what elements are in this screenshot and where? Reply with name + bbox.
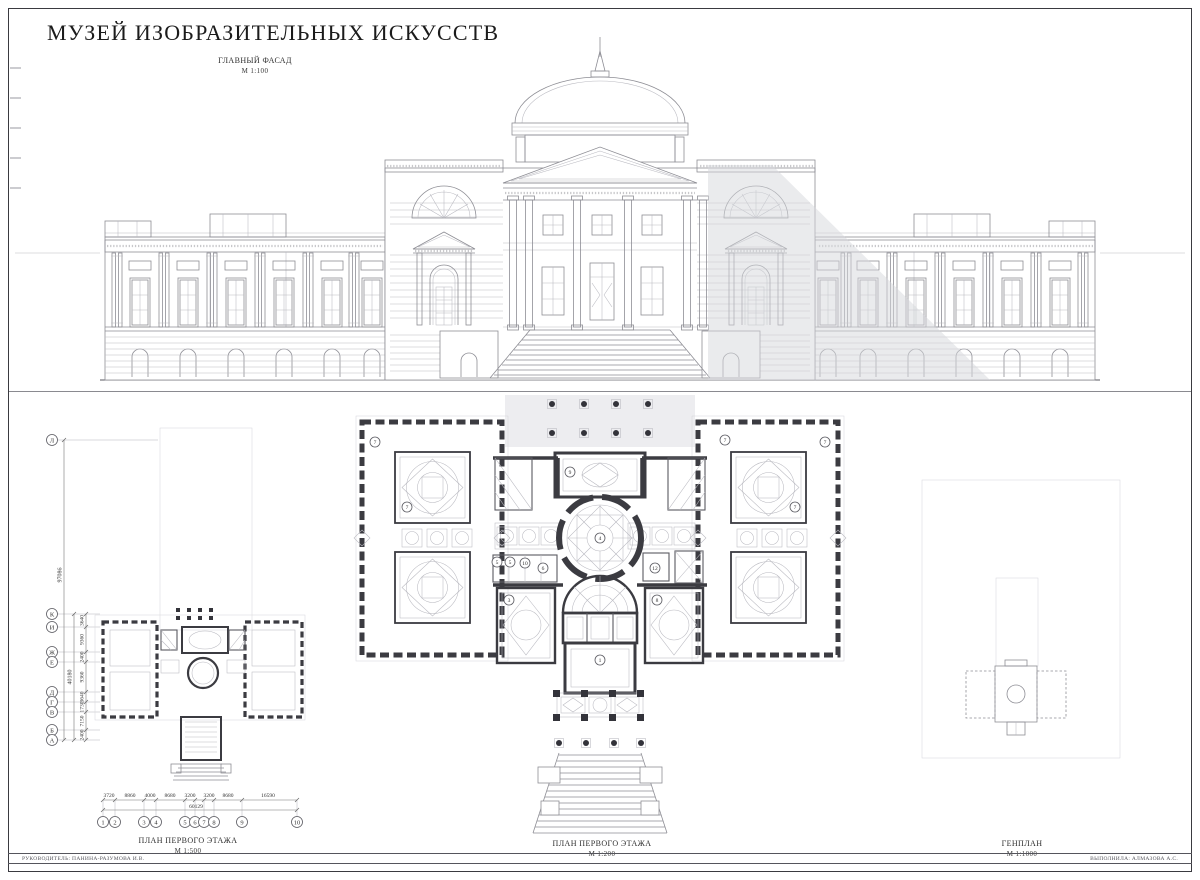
footer-supervisor: РУКОВОДИТЕЛЬ: ПАНИНА-РАЗУМОВА И.В. [22, 856, 144, 862]
svg-text:5: 5 [183, 819, 186, 826]
svg-text:3: 3 [508, 598, 511, 604]
svg-text:10: 10 [522, 561, 528, 567]
svg-text:5: 5 [496, 560, 499, 566]
title-block-band: РУКОВОДИТЕЛЬ: ПАНИНА-РАЗУМОВА И.В. ВЫПОЛ… [8, 853, 1192, 864]
genplan-drawing [915, 470, 1140, 760]
svg-text:7: 7 [406, 505, 409, 511]
room-marker: 8 [652, 595, 662, 605]
plan200-caption-label: ПЛАН ПЕРВОГО ЭТАЖА [492, 839, 712, 850]
svg-text:1: 1 [599, 658, 602, 664]
svg-text:К: К [50, 611, 55, 618]
svg-text:А: А [50, 737, 55, 744]
svg-text:4: 4 [599, 536, 602, 542]
plan-1-200-drawing: 77777945510612381 [345, 395, 845, 850]
svg-text:Д: Д [50, 689, 55, 696]
svg-text:7: 7 [824, 440, 827, 446]
room-marker: 5 [492, 557, 502, 567]
svg-text:В: В [50, 709, 55, 716]
svg-text:6: 6 [542, 566, 545, 572]
svg-text:9: 9 [240, 819, 243, 826]
svg-text:97086: 97086 [58, 568, 64, 583]
svg-text:И: И [50, 624, 55, 631]
svg-text:10: 10 [294, 819, 301, 826]
svg-text:8: 8 [656, 598, 659, 604]
room-marker: 9 [565, 467, 575, 477]
svg-text:5: 5 [509, 560, 512, 566]
drawing-sheet: МУЗЕЙ ИЗОБРАЗИТЕЛЬНЫХ ИСКУССТВ ГЛАВНЫЙ Ф… [0, 0, 1200, 880]
room-marker: 4 [595, 533, 605, 543]
svg-text:9: 9 [569, 470, 572, 476]
room-marker: 7 [370, 437, 380, 447]
room-marker: 6 [538, 563, 548, 573]
svg-text:Ж: Ж [49, 649, 55, 656]
room-marker: 10 [520, 558, 530, 568]
room-marker: 5 [505, 557, 515, 567]
svg-text:Л: Л [50, 437, 55, 444]
svg-text:Е: Е [50, 659, 54, 666]
svg-text:7: 7 [724, 438, 727, 444]
svg-text:3: 3 [142, 819, 145, 826]
svg-text:8: 8 [212, 819, 215, 826]
plan-1-500-drawing [85, 420, 315, 805]
svg-text:40180: 40180 [68, 670, 74, 685]
room-marker: 3 [504, 595, 514, 605]
svg-text:12: 12 [652, 566, 658, 572]
svg-text:2: 2 [113, 819, 116, 826]
room-marker: 7 [790, 502, 800, 512]
svg-text:Б: Б [50, 727, 54, 734]
room-marker: 7 [402, 502, 412, 512]
svg-text:7: 7 [374, 440, 377, 446]
genplan-caption-label: ГЕНПЛАН [912, 839, 1132, 850]
svg-text:7: 7 [794, 505, 797, 511]
footer-author: ВЫПОЛНИЛА: АЛМАЗОВА А.С. [1090, 856, 1178, 862]
room-marker: 7 [820, 437, 830, 447]
room-marker: 1 [595, 655, 605, 665]
room-marker: 12 [650, 563, 660, 573]
plan500-caption-label: ПЛАН ПЕРВОГО ЭТАЖА [78, 836, 298, 847]
svg-text:1: 1 [101, 819, 104, 826]
svg-text:Г: Г [50, 699, 54, 706]
room-marker: 7 [720, 435, 730, 445]
